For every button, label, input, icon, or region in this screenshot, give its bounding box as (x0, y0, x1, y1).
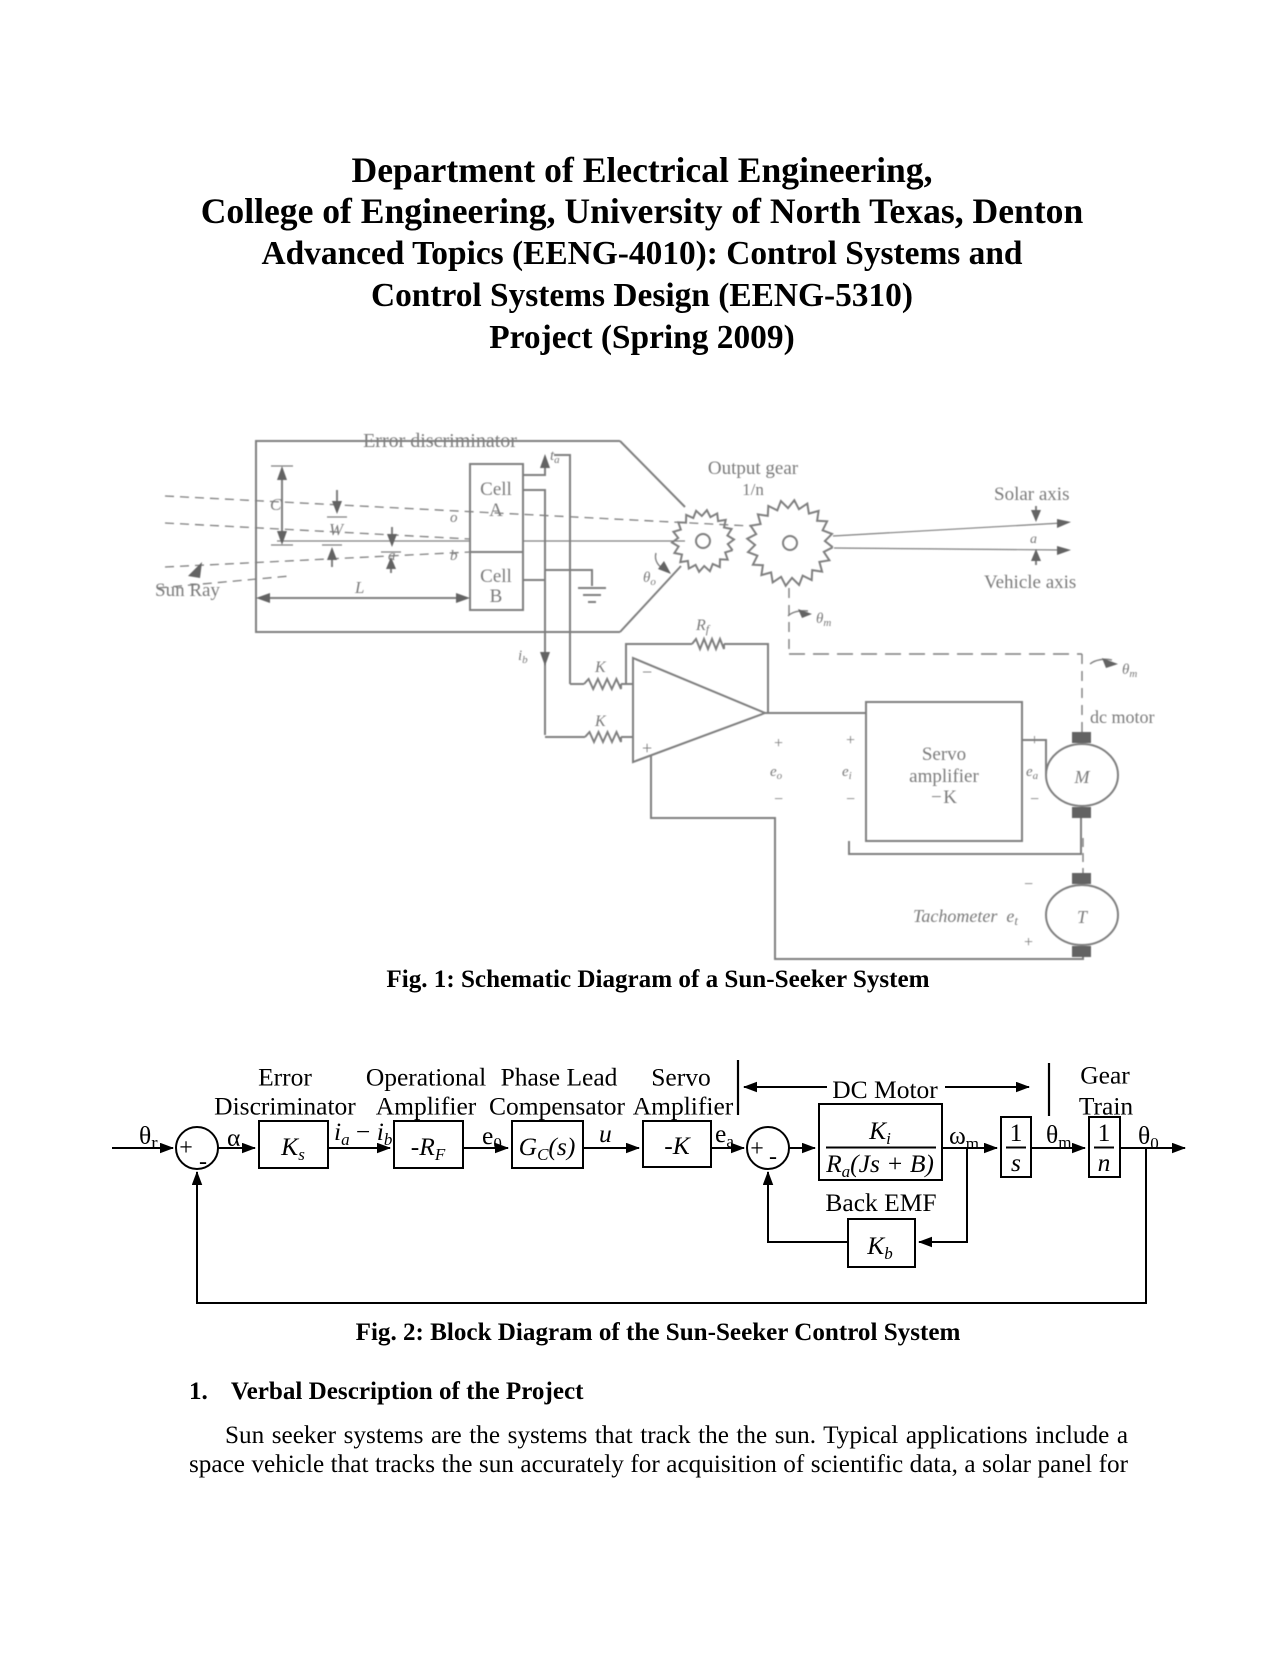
svg-text:DC Motor: DC Motor (832, 1075, 938, 1104)
svg-text:K: K (594, 713, 607, 730)
svg-text:Ks: Ks (280, 1132, 305, 1164)
svg-text:−: − (1030, 791, 1039, 808)
svg-text:T: T (1077, 907, 1089, 927)
svg-text:a: a (1030, 532, 1037, 547)
svg-text:Solar axis: Solar axis (994, 484, 1069, 505)
svg-text:−: − (642, 662, 652, 682)
svg-text:1: 1 (1010, 1118, 1023, 1147)
svg-text:Servo: Servo (922, 744, 966, 765)
svg-text:ib: ib (518, 648, 528, 666)
svg-text:−: − (846, 791, 855, 808)
svg-text:-: - (769, 1144, 777, 1170)
svg-text:Ra(Js + B): Ra(Js + B) (825, 1149, 934, 1181)
svg-text:−: − (774, 791, 783, 808)
svg-text:b: b (450, 548, 458, 564)
svg-text:Rf: Rf (695, 617, 711, 636)
svg-text:dc motor: dc motor (1090, 707, 1155, 727)
svg-text:W: W (329, 520, 345, 539)
svg-text:eo: eo (770, 764, 783, 782)
svg-text:θm: θm (1122, 662, 1137, 680)
svg-text:Error: Error (258, 1063, 312, 1092)
svg-text:-RF: -RF (411, 1132, 446, 1164)
svg-text:A: A (489, 500, 503, 521)
svg-text:Back EMF: Back EMF (825, 1188, 936, 1217)
svg-text:Vehicle axis: Vehicle axis (984, 572, 1076, 593)
svg-text:+: + (750, 1136, 764, 1162)
svg-text:ia − ib: ia − ib (334, 1117, 392, 1149)
svg-text:Cell: Cell (480, 566, 512, 587)
svg-text:Ki: Ki (868, 1116, 891, 1148)
svg-text:o: o (450, 510, 458, 526)
svg-text:L: L (354, 578, 364, 597)
svg-text:B: B (490, 586, 503, 607)
svg-text:K: K (594, 659, 607, 676)
svg-text:− K: − K (931, 787, 957, 808)
svg-text:θr: θr (139, 1121, 158, 1154)
svg-text:C: C (270, 495, 282, 514)
svg-text:−: − (1024, 876, 1033, 893)
svg-text:ta: ta (550, 448, 560, 466)
svg-text:+: + (1024, 934, 1033, 951)
svg-text:Operational: Operational (366, 1063, 486, 1092)
svg-text:ea: ea (715, 1119, 734, 1151)
svg-text:Cell: Cell (480, 479, 512, 500)
svg-text:Servo: Servo (651, 1063, 711, 1092)
svg-text:Output gear: Output gear (708, 458, 799, 479)
svg-text:Tachometer et: Tachometer et (913, 906, 1018, 928)
svg-text:Amplifier: Amplifier (633, 1092, 734, 1121)
svg-text:Kb: Kb (866, 1231, 893, 1263)
svg-text:ea: ea (1026, 764, 1039, 782)
svg-text:-: - (199, 1149, 207, 1175)
svg-text:s: s (1011, 1148, 1021, 1177)
svg-text:M: M (1074, 767, 1091, 787)
svg-text:u: u (599, 1119, 612, 1148)
svg-text:Amplifier: Amplifier (376, 1092, 477, 1121)
svg-text:Gear: Gear (1080, 1061, 1130, 1090)
svg-text:θm: θm (816, 611, 831, 629)
svg-text:Phase Lead: Phase Lead (501, 1063, 618, 1092)
svg-text:+: + (179, 1135, 193, 1161)
svg-text:Compensator: Compensator (489, 1092, 625, 1121)
svg-text:GC(s): GC(s) (519, 1132, 576, 1164)
svg-text:ei: ei (842, 764, 852, 782)
svg-text:θo: θo (643, 570, 656, 588)
svg-text:n: n (1098, 1148, 1111, 1177)
svg-text:+: + (642, 738, 652, 758)
svg-text:+: + (846, 732, 855, 749)
svg-text:Sun Ray: Sun Ray (155, 580, 220, 601)
svg-text:+: + (774, 735, 783, 752)
svg-text:1/n: 1/n (742, 480, 764, 499)
svg-text:amplifier: amplifier (909, 766, 979, 787)
svg-text:1: 1 (1098, 1118, 1111, 1147)
svg-text:-K: -K (664, 1131, 691, 1160)
